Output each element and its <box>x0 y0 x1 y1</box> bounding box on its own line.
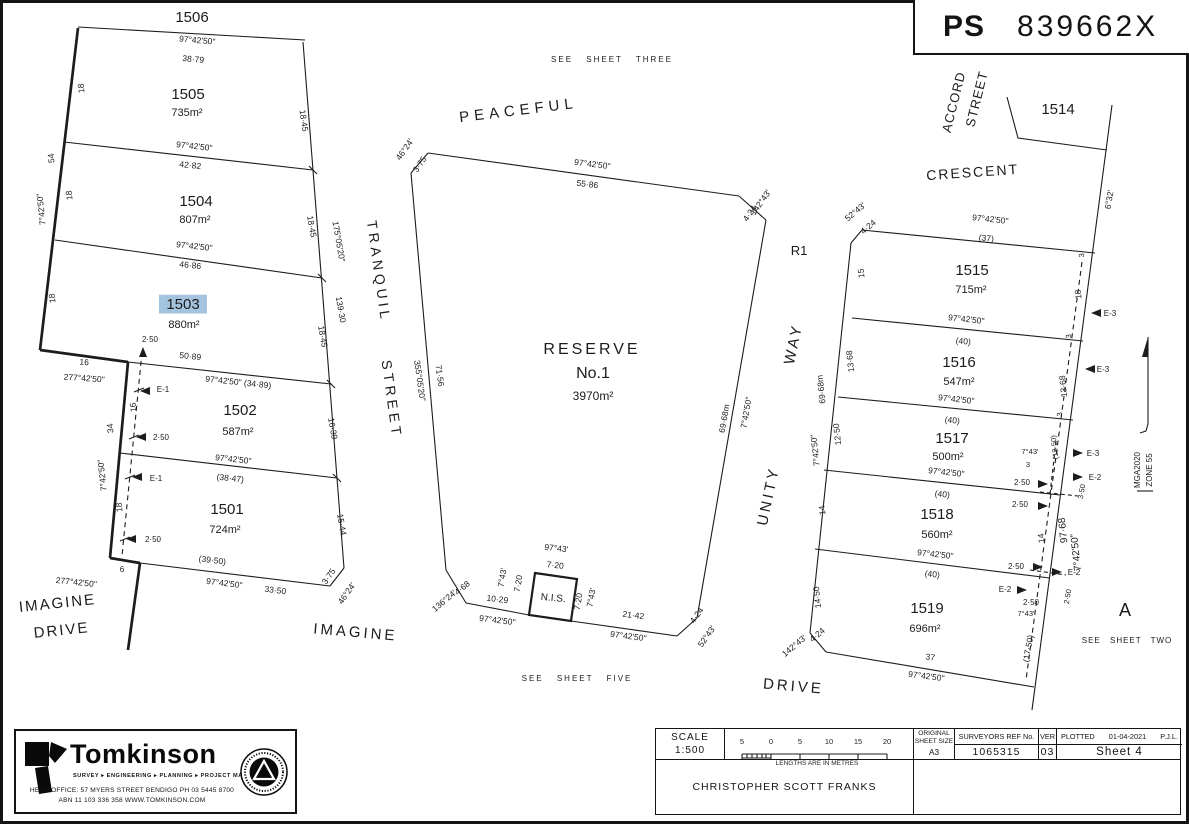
plan-label: (39·50) <box>198 553 227 566</box>
mga2020-label: MGA2020 <box>1133 451 1142 488</box>
plan-label: 7°43' <box>1022 447 1040 456</box>
logo-address-1: HEAD OFFICE: 57 MYERS STREET BENDIGO PH … <box>16 787 248 794</box>
plan-label: 13·68 <box>1057 375 1069 398</box>
plan-label: 724m² <box>209 524 241 536</box>
survey-plan-sheet: 150697°42'50"38·79181505735m²18·4597°42'… <box>0 0 1189 824</box>
lot-1503-number-highlighted: 1503 <box>166 296 199 313</box>
lot-1506-number: 1506 <box>175 9 208 26</box>
surveyors-ref-cell: SURVEYORS REF No. 1065315 <box>954 729 1038 759</box>
plan-label: 97°42'50" <box>176 239 213 253</box>
street-crescent: CRESCENT <box>926 161 1020 183</box>
plan-label: 97·68 <box>1057 517 1071 544</box>
plan-label: 7·20 <box>572 592 585 611</box>
plan-label: 2·50 <box>1012 500 1029 509</box>
plan-label: 7°42'50" <box>738 396 753 429</box>
oss-value: A3 <box>929 748 939 758</box>
plan-label: 3·75 <box>320 566 338 586</box>
plan-label: 7·20 <box>546 559 564 571</box>
plan-label: 7°42'50" <box>808 434 821 467</box>
plan-label: 33·50 <box>264 584 287 597</box>
plan-label: 18·45 <box>316 325 330 348</box>
plan-label: 97°42'50" <box>206 576 243 590</box>
surveyors-ref-label: SURVEYORS REF No. <box>955 729 1038 745</box>
street-unity: UNITY <box>754 465 783 527</box>
version-value: 03 <box>1039 745 1056 759</box>
see-sheet-five: SEE SHEET FIVE <box>522 674 633 683</box>
street-imagine-drive-1: IMAGINE <box>18 591 97 616</box>
plan-label: 97°42'50" <box>917 547 954 561</box>
reserve-title: RESERVE <box>543 341 640 358</box>
lot-1504-number: 1504 <box>179 193 212 210</box>
plan-label: 14 <box>1036 533 1047 544</box>
street-tranquil-1: TRANQUIL <box>364 219 394 323</box>
surveyors-ref-value: 1065315 <box>955 745 1038 759</box>
plan-label: 18 <box>76 83 87 94</box>
plan-label: 42·82 <box>179 159 202 171</box>
east-boundary <box>1032 105 1112 710</box>
north-arrow-head <box>1142 337 1148 357</box>
version-label: VER <box>1039 729 1056 745</box>
lot-1501-number: 1501 <box>210 501 243 518</box>
iso-9001-badge-icon <box>239 747 289 797</box>
plan-label: 12·50 <box>831 423 843 446</box>
plan-label: E-2 <box>1089 473 1102 482</box>
nis-label: N.I.S. <box>540 592 566 605</box>
plan-label: 38·79 <box>182 53 205 65</box>
west-boundary <box>40 28 78 350</box>
plan-label: (40) <box>955 335 971 347</box>
original-sheet-size-cell: ORIGINAL SHEET SIZE A3 <box>913 729 954 759</box>
plan-label: 3 <box>1055 412 1064 417</box>
plan-label: 807m² <box>179 214 211 226</box>
see-sheet-two: SEE SHEET TWO <box>1082 636 1173 645</box>
plan-label: 97°42'50" <box>479 613 516 627</box>
plan-label: 97°42'50" <box>948 312 985 326</box>
plan-label: 97°42'50" <box>938 392 975 406</box>
street-way: WAY <box>781 322 806 366</box>
arrow-e2-c <box>1017 586 1027 594</box>
plan-label: 3 <box>1064 334 1073 339</box>
lot-1505-number: 1505 <box>171 86 204 103</box>
plan-label: 136°24' <box>430 587 459 613</box>
plan-line <box>1140 424 1148 433</box>
plan-label: (40) <box>924 568 940 580</box>
plan-label: 7°42'50" <box>34 193 47 226</box>
plan-label: 880m² <box>168 319 200 331</box>
plan-label: 52°43' <box>843 200 868 223</box>
plan-label: 10·29 <box>486 593 509 606</box>
street-imagine-drive-2: DRIVE <box>33 619 90 642</box>
plan-label: 7°43' <box>584 587 597 608</box>
plan-label: 2·50 <box>1062 588 1073 604</box>
logo-address-2: ABN 11 103 336 358 WWW.TOMKINSON.COM <box>16 797 248 804</box>
plan-label: 7°43' <box>1018 609 1036 618</box>
plan-label: 71·56 <box>434 364 447 387</box>
plan-label: E-3 <box>1097 365 1110 374</box>
scale-value: 1:500 <box>675 745 705 756</box>
west-boundary-mid <box>110 362 128 558</box>
licensee-name: CHRISTOPHER SCOTT FRANKS <box>692 781 876 793</box>
plan-label: 18 <box>1073 289 1084 300</box>
street-imagine: IMAGINE <box>313 620 399 644</box>
ps-number: 839662X <box>1017 10 1158 44</box>
plotted-label: PLOTTED <box>1061 732 1095 741</box>
plan-label: 97°42'50" <box>972 212 1009 226</box>
plan-label: 7°43' <box>495 567 508 588</box>
plan-label: 587m² <box>222 426 254 438</box>
plotted-cell: PLOTTED 01-04-2021 P.J.L. Sheet 4 <box>1056 729 1182 759</box>
plan-label: 277°42'50" <box>63 372 105 385</box>
plan-label: 175°05'20" <box>330 220 347 262</box>
plan-label: 55·86 <box>576 178 599 191</box>
boundary-step-6m <box>110 558 140 563</box>
plan-label: 14 <box>817 505 828 516</box>
plan-label: 2·50 <box>1008 562 1025 571</box>
plan-label: 3 <box>1026 460 1030 469</box>
plan-label: 2·50 <box>145 535 162 544</box>
plan-label: E-3 <box>1104 309 1117 318</box>
arrow-e2-b <box>1052 568 1062 576</box>
plan-label: 560m² <box>921 529 953 541</box>
plan-label: 2·50 <box>142 335 159 344</box>
plan-label: (37) <box>978 232 994 244</box>
arrow-2-50-d <box>1038 502 1048 510</box>
plan-label: 69·68m <box>815 374 828 404</box>
plan-label: E-2 <box>1068 568 1081 577</box>
imagine-drive-edge <box>128 563 140 650</box>
street-tranquil-2: STREET <box>379 359 406 440</box>
plan-label: 37 <box>925 651 936 662</box>
plan-label: 15 <box>856 268 867 279</box>
arrow-e1-b <box>132 473 142 481</box>
plan-label: 139·30 <box>334 296 348 324</box>
plan-label: 3·50 <box>1076 483 1087 499</box>
plan-label: 3·75 <box>411 154 429 174</box>
plan-label: 15·44 <box>335 513 349 536</box>
plan-label: 97°42'50" <box>176 139 213 153</box>
plan-number-box: PS 839662X <box>913 0 1189 55</box>
arrow-e3-a <box>1091 309 1101 317</box>
plan-label: 46·86 <box>179 259 202 271</box>
plan-label: 97°42'50" <box>215 452 252 466</box>
arrow-e1-a <box>140 387 150 395</box>
plan-label: 7°42'50" <box>95 459 108 492</box>
logo-wordmark: Tomkinson <box>70 739 217 770</box>
plan-label: 2·50 <box>153 433 170 442</box>
plotted-initials: P.J.L. <box>1160 732 1178 741</box>
lot-1514-number: 1514 <box>1041 101 1074 118</box>
reserve-number: No.1 <box>576 365 610 382</box>
plan-label: 50·89 <box>179 350 202 362</box>
arrow-2-50-b <box>126 535 136 543</box>
arrow-2-50-c <box>1038 480 1048 488</box>
surveyor-logo-box: Tomkinson SURVEY ▸ ENGINEERING ▸ PLANNIN… <box>14 729 297 814</box>
reserve-south-west <box>466 603 529 615</box>
see-sheet-three: SEE SHEET THREE <box>551 55 673 64</box>
plan-label: 14·50 <box>811 586 823 609</box>
plan-label: (17·50) <box>1021 634 1036 663</box>
version-cell: VER 03 <box>1038 729 1056 759</box>
zone-55-label: ZONE 55 <box>1145 453 1154 487</box>
plan-label: (38·47) <box>216 472 244 485</box>
plan-label: 16 <box>128 402 139 413</box>
plan-label: 2·50 <box>1014 478 1031 487</box>
arrow-e2-a <box>1073 473 1083 481</box>
plan-label: 735m² <box>171 107 203 119</box>
plan-label: 46°24' <box>394 136 416 162</box>
plan-label: 7·20 <box>512 574 525 593</box>
plan-label: 4·24 <box>858 217 878 236</box>
plan-label: 277°42'50" <box>55 575 97 589</box>
plan-label: 3 <box>1077 253 1086 258</box>
arrow-up-2-50 <box>139 347 147 357</box>
plan-label: 142°43' <box>780 632 809 658</box>
plan-label: (12·50) <box>1049 434 1061 459</box>
plan-label: 500m² <box>932 451 964 463</box>
plan-label: 18 <box>47 293 58 304</box>
scalebar-cell <box>724 729 913 759</box>
label-a: A <box>1119 600 1131 620</box>
scale-cell: SCALE 1:500 <box>656 729 724 759</box>
plan-label: E-2 <box>999 585 1012 594</box>
zone-r1: R1 <box>791 243 808 258</box>
plan-label: 355°05'20" <box>412 360 428 402</box>
title-block: SCALE 1:500 ORIGINAL SHEET SIZE A3 SURVE… <box>655 728 1181 815</box>
street-drive: DRIVE <box>762 675 824 697</box>
plan-label: 6 <box>120 565 125 574</box>
oss-line1: ORIGINAL <box>918 730 950 738</box>
plan-label: E-1 <box>157 385 170 394</box>
sheet-number: Sheet 4 <box>1057 745 1182 759</box>
plan-label: 6°32' <box>1102 189 1115 210</box>
reserve-area: 3970m² <box>573 389 614 403</box>
plan-label: 13·68 <box>844 350 856 373</box>
plan-label: 7°42'50" <box>1069 533 1084 572</box>
plan-label: 97°42'50" <box>574 157 611 171</box>
lot-1515-number: 1515 <box>955 262 988 279</box>
plan-label: 16·39 <box>326 417 340 440</box>
plotted-date: 01-04-2021 <box>1109 732 1146 741</box>
plan-label: 21·42 <box>622 609 645 622</box>
lot-1502-number: 1502 <box>223 402 256 419</box>
plan-label: (40) <box>944 414 960 426</box>
plan-label: 547m² <box>943 376 975 388</box>
arrow-2-50-e <box>1033 563 1043 571</box>
plan-label: 54 <box>46 153 57 164</box>
ps-prefix: PS <box>943 10 985 44</box>
plan-label: 97°42'50" <box>179 33 216 46</box>
plan-label: 18 <box>114 502 125 513</box>
lot-1518-number: 1518 <box>920 506 953 523</box>
empty-cell <box>913 759 1182 814</box>
lot-1517-number: 1517 <box>935 430 968 447</box>
plan-label: 4·24 <box>688 605 706 625</box>
lot-1516-number: 1516 <box>942 354 975 371</box>
arrow-2-50-a <box>136 433 146 441</box>
plan-label: 2·50 <box>1023 598 1040 607</box>
street-peaceful: PEACEFUL <box>458 95 578 126</box>
plan-label: 52°43' <box>696 623 718 649</box>
lot-1519-number: 1519 <box>910 600 943 617</box>
plan-label: 16 <box>79 357 89 368</box>
oss-line2: SHEET SIZE <box>915 738 953 746</box>
plan-label: 18·45 <box>298 109 311 132</box>
plan-label: (40) <box>934 488 950 500</box>
plan-label: 715m² <box>955 284 987 296</box>
plan-label: 46°24' <box>336 580 358 606</box>
plan-label: 18 <box>64 190 75 201</box>
scale-label: SCALE <box>671 732 709 743</box>
plan-label: E-1 <box>150 474 163 483</box>
reserve-east <box>697 220 766 618</box>
plan-label: 97°43' <box>544 542 569 554</box>
plan-canvas: 150697°42'50"38·79181505735m²18·4597°42'… <box>0 0 1189 824</box>
plan-label: 34 <box>105 423 116 434</box>
licensee-cell: CHRISTOPHER SCOTT FRANKS <box>656 759 913 814</box>
plan-label: 696m² <box>909 623 941 635</box>
arrow-e3-b <box>1085 365 1095 373</box>
plan-label: 97°42'50" <box>928 465 965 479</box>
plan-label: E-3 <box>1087 449 1100 458</box>
arrow-e3-c <box>1073 449 1083 457</box>
